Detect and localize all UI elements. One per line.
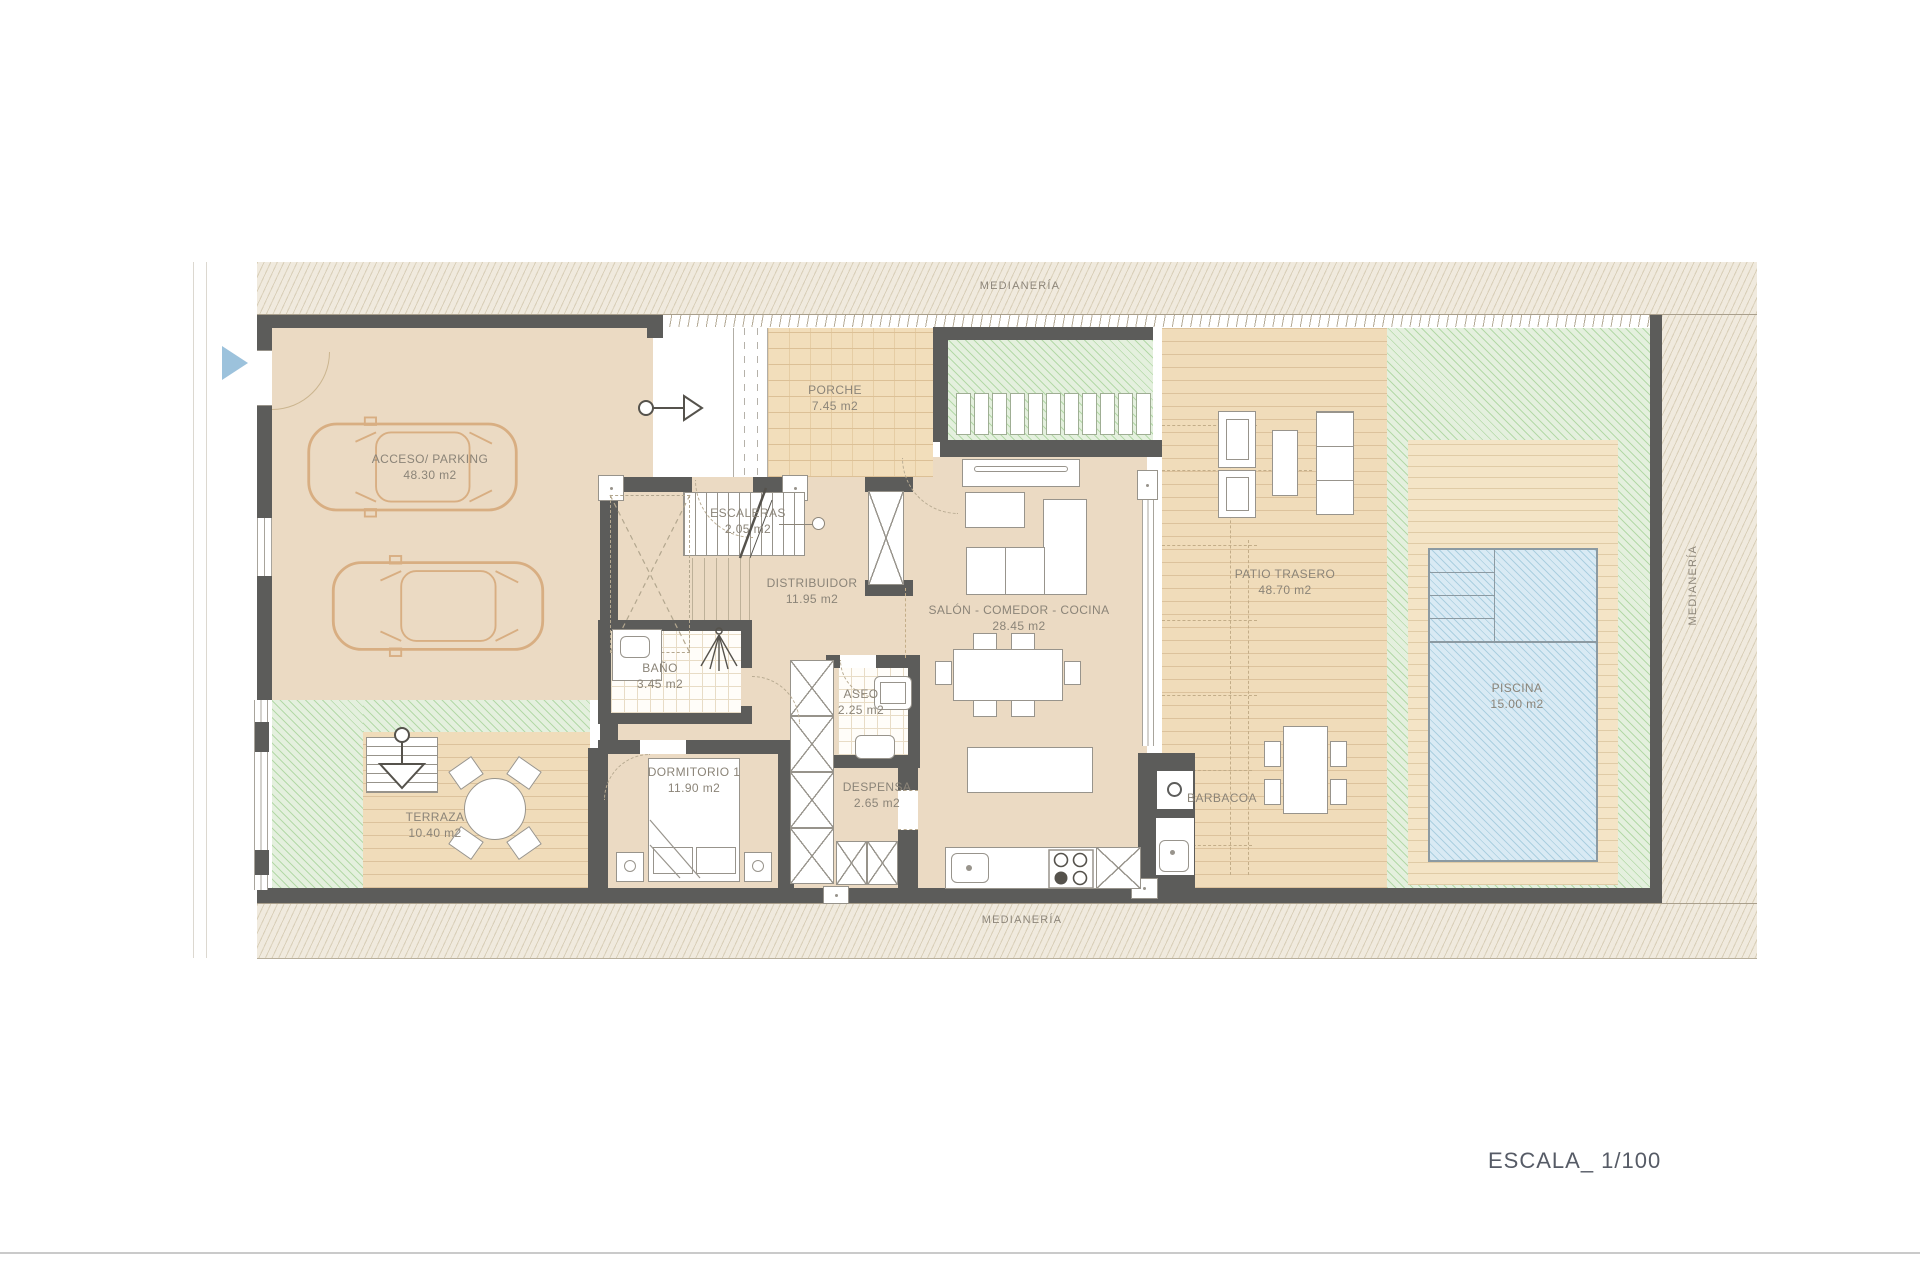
planter-row bbox=[948, 340, 1153, 442]
open-plan-divider bbox=[905, 588, 906, 658]
boundary-label-top: MEDIANERÍA bbox=[980, 279, 1060, 293]
room-label-patio: PATIO TRASERO48.70 m2 bbox=[1235, 567, 1336, 598]
wall bbox=[1650, 315, 1662, 903]
closet-armario bbox=[868, 491, 904, 585]
wall bbox=[598, 740, 792, 754]
sofa-seats bbox=[966, 547, 1045, 595]
patio-armchair-cushion bbox=[1226, 477, 1249, 511]
outdoor-sink bbox=[1159, 840, 1189, 872]
shower-icon bbox=[694, 626, 744, 674]
wall-tick-row bbox=[653, 315, 1650, 327]
wall bbox=[270, 315, 653, 328]
closet-armario bbox=[790, 716, 834, 772]
stairs-lower-dashed bbox=[692, 558, 750, 620]
nightstand-lamp bbox=[752, 860, 764, 872]
room-label-terraza: TERRAZA10.40 m2 bbox=[406, 810, 465, 841]
plot-edge-line bbox=[193, 262, 194, 958]
room-label-porche: PORCHE7.45 m2 bbox=[808, 383, 862, 414]
terraza-green-patch bbox=[272, 700, 363, 888]
pool-steps bbox=[1430, 550, 1495, 642]
patio-dashed-line bbox=[1162, 695, 1257, 696]
boundary-label-bottom: MEDIANERÍA bbox=[982, 913, 1062, 927]
room-label-escaleras: ESCALERAS2.05 m2 bbox=[710, 506, 786, 537]
bed-fold-line bbox=[650, 810, 738, 880]
closet-armario bbox=[790, 828, 834, 884]
wall bbox=[933, 327, 948, 442]
column-marker bbox=[823, 886, 849, 904]
dining-chair bbox=[973, 700, 997, 717]
kitchen-cabinet bbox=[1096, 847, 1141, 889]
planter-box bbox=[1082, 393, 1097, 435]
room-label-despensa: DESPENSA2.65 m2 bbox=[843, 780, 912, 811]
planter-box bbox=[992, 393, 1007, 435]
room-label-salon: SALÓN - COMEDOR - COCINA28.45 m2 bbox=[929, 603, 1110, 634]
page-bottom-rule bbox=[0, 1252, 1920, 1254]
pool-lane-line bbox=[1430, 641, 1596, 643]
sofa-chaise bbox=[1043, 499, 1087, 595]
bath-sink bbox=[620, 636, 650, 658]
wall bbox=[647, 315, 663, 338]
wall bbox=[948, 327, 1153, 340]
room-label-bano: BAÑO3.45 m2 bbox=[637, 661, 683, 692]
boundary-band-bottom bbox=[257, 903, 1757, 958]
plot-edge-line bbox=[206, 262, 207, 958]
despensa-cabinet bbox=[836, 841, 867, 885]
dining-table bbox=[953, 649, 1063, 701]
nightstand-lamp bbox=[624, 860, 636, 872]
stove-icon bbox=[1048, 849, 1094, 889]
car-icon bbox=[313, 556, 563, 656]
despensa-cabinet bbox=[867, 841, 898, 885]
entry-direction-icon bbox=[636, 392, 706, 424]
wall bbox=[908, 655, 920, 768]
room-label-distribuidor: DISTRIBUIDOR11.95 m2 bbox=[767, 576, 858, 607]
wall bbox=[257, 575, 272, 700]
planter-box bbox=[1046, 393, 1061, 435]
wall bbox=[255, 850, 269, 875]
planter-box bbox=[1064, 393, 1079, 435]
dining-chair bbox=[1011, 700, 1035, 717]
wall bbox=[257, 405, 272, 520]
scale-label: ESCALA_ 1/100 bbox=[1488, 1148, 1661, 1174]
tv-sideboard-slot bbox=[974, 466, 1068, 472]
garage-door-gap bbox=[257, 350, 272, 406]
window bbox=[257, 518, 272, 576]
dining-chair bbox=[973, 633, 997, 650]
room-label-dormitorio: DORMITORIO 111.90 m2 bbox=[648, 765, 741, 796]
entry-arrow-icon bbox=[222, 346, 248, 380]
wall bbox=[257, 888, 1662, 903]
leader-circle bbox=[812, 517, 825, 530]
planter-box bbox=[974, 393, 989, 435]
boundary-band-right bbox=[1662, 315, 1757, 903]
wall bbox=[588, 748, 608, 888]
planter-box bbox=[1136, 393, 1151, 435]
kitchen-faucet bbox=[966, 865, 972, 871]
patio-dining-table bbox=[1283, 726, 1328, 814]
column-marker bbox=[1137, 470, 1158, 500]
room-label-piscina: PISCINA15.00 m2 bbox=[1490, 681, 1543, 712]
room-label-aseo: ASEO2.25 m2 bbox=[838, 687, 884, 718]
patio-dashed-line bbox=[1162, 545, 1257, 546]
patio-chair bbox=[1330, 741, 1347, 767]
planter-box bbox=[1118, 393, 1133, 435]
patio-coffee-table bbox=[1272, 430, 1298, 496]
wall bbox=[940, 440, 1162, 457]
planter-box bbox=[956, 393, 971, 435]
wall bbox=[598, 713, 752, 724]
planter-box bbox=[1100, 393, 1115, 435]
door-gap bbox=[640, 740, 686, 754]
patio-chair bbox=[1330, 779, 1347, 805]
outdoor-sink-drain bbox=[1170, 850, 1175, 855]
room-label-barbacoa: BARBACOA bbox=[1187, 791, 1257, 807]
salon-glazing bbox=[1142, 500, 1154, 746]
dining-chair bbox=[1011, 633, 1035, 650]
planter-box bbox=[1028, 393, 1043, 435]
stairs-down-arrow-icon bbox=[372, 726, 432, 792]
patio-sofa bbox=[1316, 411, 1354, 515]
room-label-parking: ACCESO/ PARKING48.30 m2 bbox=[372, 452, 488, 483]
dining-chair bbox=[1064, 661, 1081, 685]
terraza-table bbox=[464, 778, 526, 840]
walkway-strip bbox=[733, 328, 768, 477]
wall bbox=[255, 722, 269, 752]
closet-armario bbox=[790, 772, 834, 828]
wall bbox=[741, 706, 752, 724]
patio-chair bbox=[1264, 779, 1281, 805]
boundary-label-right: MEDIANERÍA bbox=[1686, 545, 1700, 625]
patio-armchair-cushion bbox=[1226, 419, 1249, 460]
kitchen-island bbox=[967, 747, 1093, 793]
floor-plan-canvas: MEDIANERÍA MEDIANERÍA MEDIANERÍA ACCESO/… bbox=[0, 0, 1920, 1280]
patio-dashed-line bbox=[1162, 620, 1257, 621]
tv-sideboard bbox=[962, 459, 1080, 487]
barbacoa-burner-icon bbox=[1167, 782, 1182, 797]
aseo-sink bbox=[855, 735, 895, 759]
side-table bbox=[965, 492, 1025, 528]
planter-box bbox=[1010, 393, 1025, 435]
dining-chair bbox=[935, 661, 952, 685]
patio-chair bbox=[1264, 741, 1281, 767]
